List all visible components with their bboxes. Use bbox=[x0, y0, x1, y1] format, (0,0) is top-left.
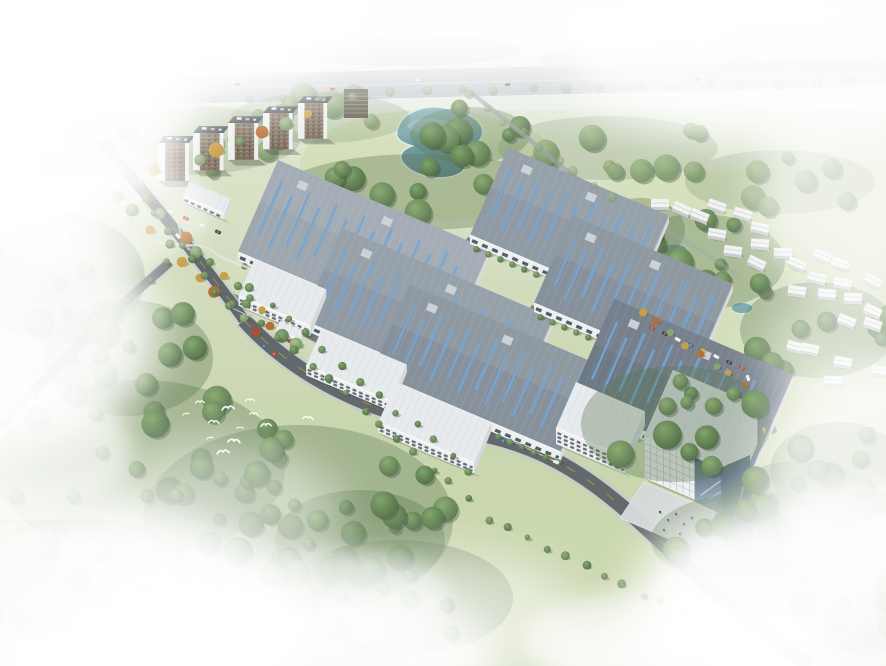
overall-haze bbox=[0, 0, 886, 666]
fog-layer bbox=[0, 0, 886, 666]
scene-svg bbox=[0, 0, 886, 666]
aerial-render-image bbox=[0, 0, 886, 666]
